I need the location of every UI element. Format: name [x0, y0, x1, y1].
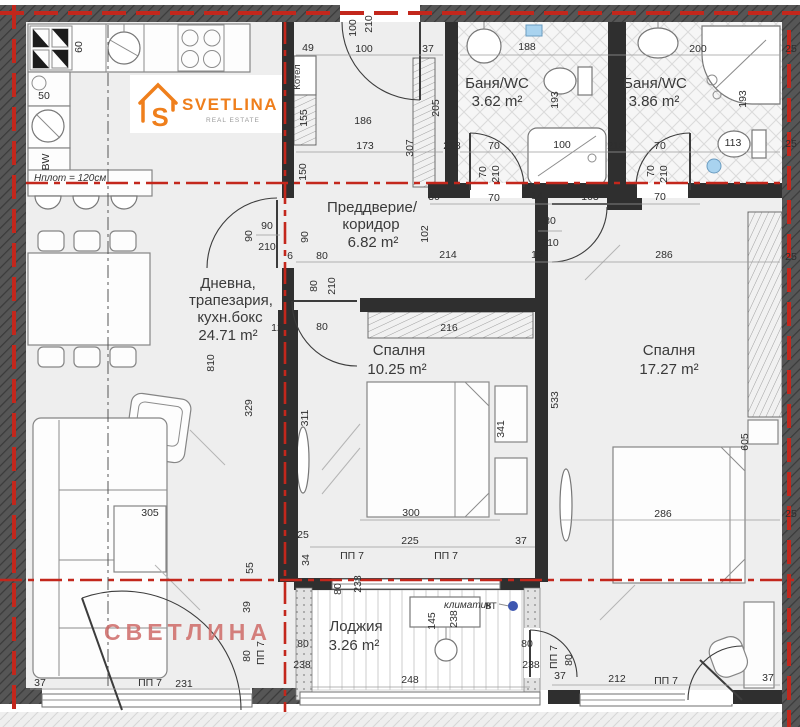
- dimension-label: 307: [404, 139, 416, 157]
- dimension-label: 25: [785, 138, 797, 150]
- dimension-label: 80: [316, 321, 328, 333]
- dimension-label: 210: [363, 15, 375, 33]
- dimension-label: 25: [785, 251, 797, 263]
- dimension-label: 37: [762, 672, 774, 684]
- dimension-label: 25: [785, 508, 797, 520]
- vt-label: ВТ: [485, 601, 497, 612]
- dimension-label: 329: [243, 399, 255, 417]
- wall-bottom-left: [0, 688, 42, 704]
- dimension-label: 210: [541, 237, 559, 249]
- dining-chair: [74, 347, 100, 367]
- dimension-label: ПП 7: [434, 550, 458, 562]
- wardrobe-bedroom-2: [748, 212, 782, 417]
- agency-watermark: СВЕТЛИНА: [104, 619, 272, 645]
- dimension-label: 200: [689, 43, 707, 55]
- dimension-label: 113: [725, 137, 742, 149]
- dimension-label: 238: [522, 659, 540, 671]
- wall-bedroom-2-top: [607, 196, 642, 210]
- room-area-living: 24.71 m²: [198, 327, 257, 344]
- floor-drain-icon: [707, 159, 721, 173]
- window-loggia-bottom: [300, 692, 540, 705]
- room-label-living: Дневна,: [200, 275, 256, 292]
- dimension-label: 193: [737, 90, 749, 108]
- dining-table: [28, 253, 150, 345]
- dimension-label: 205: [430, 99, 442, 117]
- dining-chair: [74, 231, 100, 251]
- dimension-label: 300: [402, 507, 420, 519]
- hall-wardrobe: [413, 58, 435, 187]
- room-label-living: трапезария,: [189, 292, 273, 309]
- dimension-label: ПП 7: [340, 550, 364, 562]
- room-label-loggia: Лоджия: [329, 618, 382, 635]
- floor-plan-drawing: 6050BW4910037100210188200251552051931931…: [0, 0, 800, 727]
- room-area-bath-2: 3.86 m²: [629, 93, 680, 110]
- dimension-label: 80: [521, 638, 533, 650]
- dimension-label: 70: [488, 192, 500, 204]
- dimension-label: 533: [549, 391, 561, 409]
- small-window: [526, 25, 542, 36]
- logo-brand-text: SVETLINA: [182, 95, 278, 114]
- room-label-bedroom-1: Спалня: [373, 342, 425, 359]
- dimension-label: 90: [243, 230, 255, 242]
- wall-bottom-stub: [252, 688, 302, 704]
- agency-logo: S SVETLINA REAL ESTATE: [130, 75, 282, 133]
- dimension-label: 218: [443, 140, 461, 152]
- dimension-label: 212: [608, 673, 626, 685]
- dimension-label: 6: [287, 250, 293, 262]
- dimension-label: 80: [297, 638, 309, 650]
- dimension-label: 102: [419, 225, 431, 243]
- dimension-label: 80: [544, 215, 556, 227]
- washbasin-icon: [467, 29, 501, 63]
- dimension-label: 193: [549, 91, 561, 109]
- dimension-label: 80: [563, 654, 575, 666]
- dimension-label: 50: [38, 90, 50, 102]
- dimension-label: 70: [477, 166, 489, 178]
- dimension-label: ПП 7: [548, 645, 560, 669]
- room-label-living: кухн.бокс: [197, 309, 263, 326]
- dimension-label: 210: [658, 165, 670, 183]
- wall-bedroom-1-top: [360, 298, 535, 312]
- dimension-label: 70: [488, 140, 500, 152]
- room-label-hall: коридор: [342, 216, 399, 233]
- dimension-label: 37: [554, 670, 566, 682]
- dimension-label: 12: [271, 322, 283, 334]
- dining-chair: [110, 231, 136, 251]
- dimension-label: 150: [297, 163, 309, 181]
- dimension-label: 100: [553, 139, 571, 151]
- nightstand: [748, 420, 778, 444]
- dimension-label: 231: [175, 678, 193, 690]
- nightstand: [495, 458, 527, 514]
- window-bottom-left: [42, 694, 252, 707]
- dimension-label: 37: [34, 677, 46, 689]
- dimension-label: 218: [607, 140, 625, 152]
- dimension-label: 37: [422, 43, 434, 55]
- dimension-label: 70: [654, 140, 666, 152]
- dimension-label: 14: [531, 190, 543, 202]
- dimension-label: 80: [332, 583, 344, 595]
- dimension-label: 145: [426, 612, 438, 630]
- dimension-label: 37: [515, 535, 527, 547]
- dimension-label: 810: [205, 354, 217, 372]
- logo-tagline-text: REAL ESTATE: [206, 117, 260, 124]
- room-area-bedroom-2: 17.27 m²: [639, 361, 698, 378]
- radiator: [297, 427, 309, 493]
- dimension-label: 49: [302, 42, 314, 54]
- wall-bedroom-1-left: [278, 310, 298, 582]
- logo-s-letter: S: [151, 102, 168, 132]
- radiator: [560, 469, 572, 541]
- dimension-label: 286: [654, 508, 672, 520]
- room-label-bath-2: Баня/WC: [623, 75, 687, 92]
- dimension-label: ПП 7: [138, 677, 162, 689]
- dimension-label: ПП 7: [654, 675, 678, 687]
- dimension-label: 311: [299, 409, 311, 426]
- dimension-label: 605: [739, 433, 751, 451]
- room-label-hall: Преддверие/: [327, 199, 418, 216]
- dimension-label: 210: [258, 241, 276, 253]
- dining-chair: [110, 347, 136, 367]
- room-label-bedroom-2: Спалня: [643, 342, 695, 359]
- dimension-label: 210: [490, 165, 502, 183]
- shower-tray-icon: [528, 128, 606, 185]
- dimension-label: 70: [645, 165, 657, 177]
- dimension-label: 12: [531, 249, 543, 261]
- dimension-label: 103: [581, 191, 599, 203]
- dimension-label: 30: [428, 191, 440, 203]
- dimension-label: 186: [354, 115, 372, 127]
- dimension-label: 155: [298, 109, 310, 127]
- dimension-label: BW: [40, 153, 52, 170]
- counter-height-label: Hплот = 120см: [34, 173, 106, 184]
- boiler-label: Котел: [292, 64, 303, 89]
- dimension-label: 238: [352, 575, 364, 593]
- dimension-label: 305: [141, 507, 159, 519]
- dimension-label: 286: [655, 249, 673, 261]
- dining-chair: [38, 347, 64, 367]
- dimension-label: 90: [261, 220, 273, 232]
- dimension-label: 238: [448, 610, 460, 628]
- room-area-hall: 6.82 m²: [348, 234, 399, 251]
- dimension-label: 341: [495, 420, 507, 438]
- room-area-bedroom-1: 10.25 m²: [367, 361, 426, 378]
- dimension-label: 90: [299, 231, 311, 243]
- wall-bath-bottom: [688, 183, 782, 198]
- dimension-label: 248: [401, 674, 419, 686]
- wall-bath-divider: [608, 22, 626, 183]
- ac-pipe-icon: [435, 639, 457, 661]
- dimension-label: 80: [316, 250, 328, 262]
- dimension-label: 173: [356, 140, 374, 152]
- dimension-label: 25: [785, 43, 797, 55]
- dimension-label: 210: [326, 277, 338, 295]
- dimension-label: 60: [73, 41, 85, 53]
- floor-plan-page: 6050BW4910037100210188200251552051931931…: [0, 0, 800, 727]
- prep-sink-icon: [28, 106, 70, 148]
- dimension-label: 55: [244, 562, 256, 574]
- vt-point-icon: [508, 601, 518, 611]
- room-area-loggia: 3.26 m²: [329, 637, 380, 654]
- balcony-edge-strip: [0, 712, 800, 727]
- wall-hall-bath-1: [445, 22, 458, 183]
- dimension-label: 100: [347, 19, 359, 37]
- wall-bedroom-2-bottom: [548, 690, 580, 704]
- dimension-label: 214: [439, 249, 457, 261]
- dimension-label: 34: [300, 554, 312, 566]
- bed-2: [613, 447, 745, 583]
- room-label-bath-1: Баня/WC: [465, 75, 529, 92]
- dining-chair: [38, 231, 64, 251]
- dimension-label: 39: [241, 601, 253, 613]
- dimension-label: 80: [241, 650, 253, 662]
- dimension-label: 216: [440, 322, 458, 334]
- dimension-label: 188: [518, 41, 536, 53]
- toilet-icon: [544, 67, 592, 95]
- dimension-label: 70: [654, 191, 666, 203]
- dimension-label: 100: [355, 43, 373, 55]
- dining-zone: [28, 231, 150, 367]
- dimension-label: 238: [293, 659, 311, 671]
- room-area-bath-1: 3.62 m²: [472, 93, 523, 110]
- dimension-label: 80: [308, 280, 320, 292]
- dimension-label: 225: [401, 535, 419, 547]
- dimension-label: 25: [297, 529, 309, 541]
